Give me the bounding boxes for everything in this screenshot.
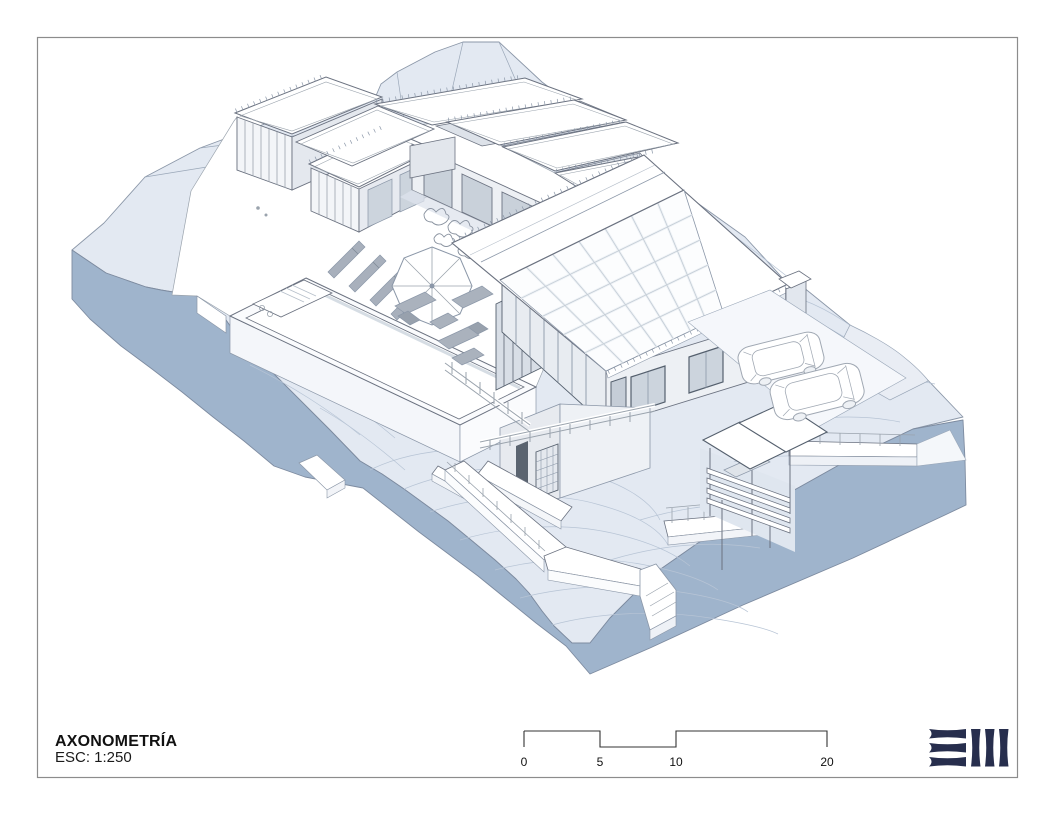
svg-text:20: 20 [820, 755, 834, 769]
svg-text:0: 0 [521, 755, 528, 769]
svg-text:10: 10 [669, 755, 683, 769]
svg-text:5: 5 [597, 755, 604, 769]
